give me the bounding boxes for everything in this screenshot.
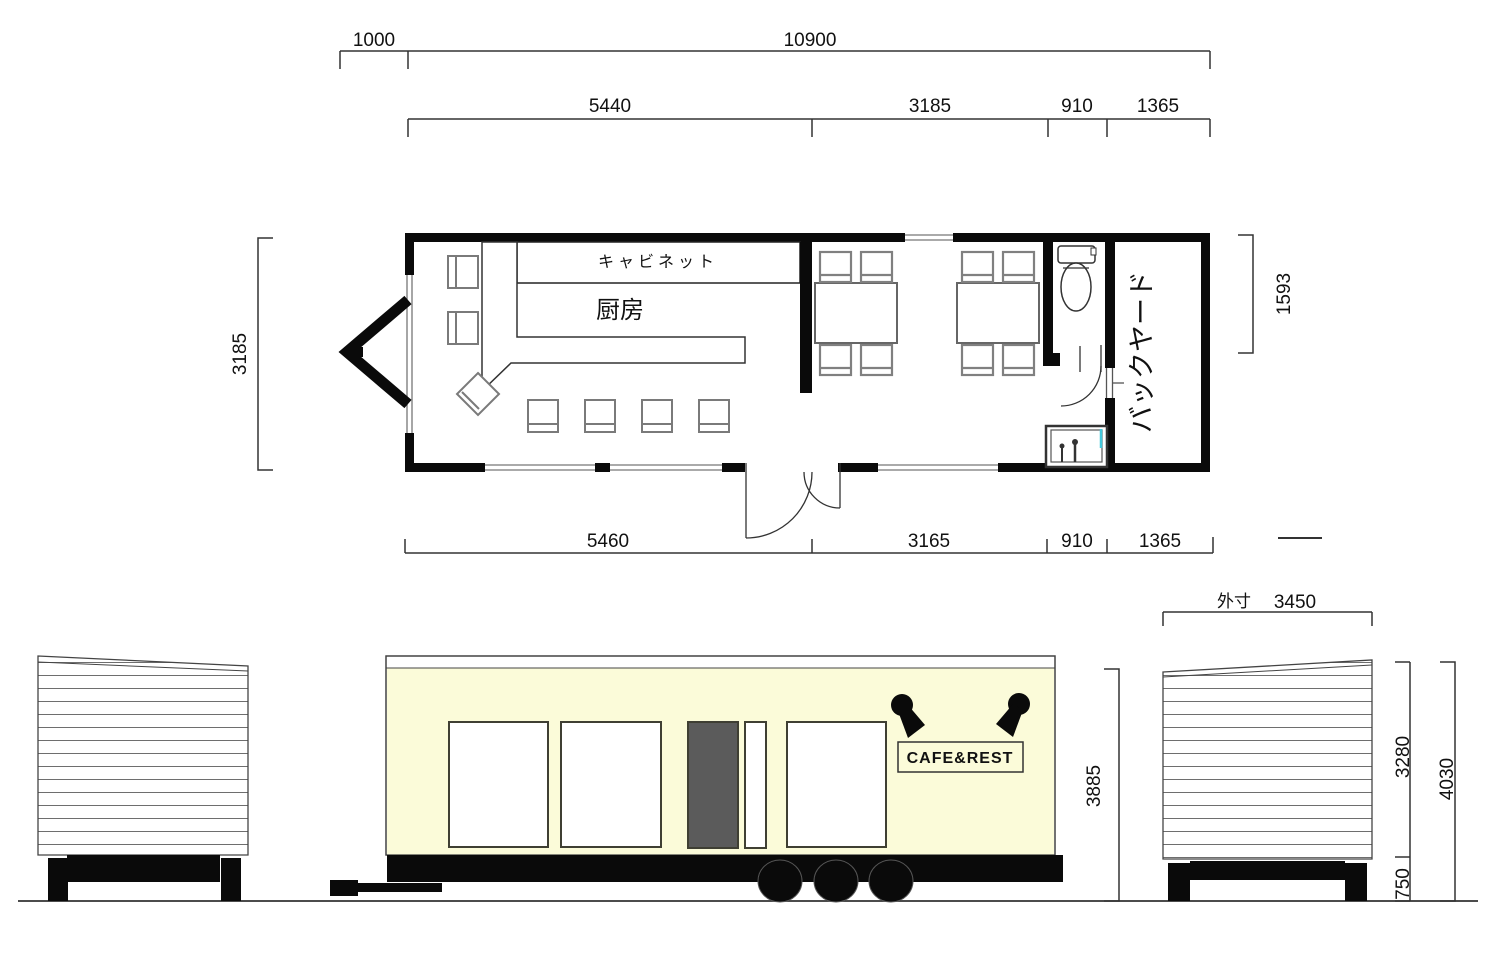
plan-dimensions-top bbox=[340, 51, 1210, 137]
kitchen-label: 厨房 bbox=[596, 297, 644, 324]
trailer-hitch bbox=[345, 300, 408, 404]
dim-top-dining: 3185 bbox=[909, 96, 951, 117]
front-door-sidelight bbox=[745, 722, 766, 848]
dim-hitch-length: 1000 bbox=[353, 30, 395, 51]
kitchen-partition-wall bbox=[800, 242, 812, 393]
floor-plan: キャビネット 厨房 bbox=[345, 233, 1210, 538]
front-door bbox=[688, 722, 738, 848]
rear-elevation bbox=[38, 656, 248, 901]
cabinet-label: キャビネット bbox=[598, 253, 718, 271]
dim-side-total-height: 4030 bbox=[1437, 758, 1458, 800]
drawing-canvas: 1000 10900 5440 3185 910 1365 bbox=[0, 0, 1500, 962]
dim-bottom-kitchen: 5460 bbox=[587, 531, 629, 552]
wheel-2 bbox=[814, 860, 858, 902]
plan-dimension-right: 1593 bbox=[1238, 235, 1295, 353]
dim-bottom-backyard: 1365 bbox=[1139, 531, 1181, 552]
cafe-sign-text: CAFE&REST bbox=[907, 750, 1014, 767]
wheel-3 bbox=[869, 860, 913, 902]
dim-top-toilet: 910 bbox=[1061, 96, 1093, 117]
wheel-1 bbox=[758, 860, 802, 902]
side-leg-right bbox=[1345, 863, 1367, 901]
hitch-bar bbox=[330, 883, 442, 892]
plan-dimension-left: 3185 bbox=[230, 238, 273, 470]
outer-dim-label: 外寸 bbox=[1217, 592, 1251, 611]
front-elevation: CAFE&REST bbox=[330, 656, 1063, 902]
wheels bbox=[758, 860, 913, 902]
front-height-dimension: 3885 bbox=[1084, 669, 1119, 901]
backyard-door bbox=[1107, 368, 1125, 398]
dim-front-height: 3885 bbox=[1084, 765, 1105, 807]
front-chassis bbox=[330, 855, 1063, 896]
rear-chassis bbox=[67, 855, 220, 882]
dim-side-outer-width: 3450 bbox=[1274, 592, 1316, 613]
dining-table-1 bbox=[815, 283, 897, 343]
dim-backyard-depth: 1593 bbox=[1274, 273, 1295, 315]
dim-top-kitchen: 5440 bbox=[589, 96, 631, 117]
plan-dimensions-bottom bbox=[405, 537, 1322, 553]
rear-leg-right bbox=[221, 858, 241, 901]
dim-bottom-toilet: 910 bbox=[1061, 531, 1093, 552]
dim-bottom-dining: 3165 bbox=[908, 531, 950, 552]
dim-plan-depth: 3185 bbox=[230, 333, 251, 375]
dim-total-width: 10900 bbox=[784, 30, 837, 51]
dim-top-backyard: 1365 bbox=[1137, 96, 1179, 117]
entrance-door bbox=[746, 463, 840, 538]
dim-side-body-height: 3280 bbox=[1393, 736, 1414, 778]
front-window-1 bbox=[449, 722, 548, 847]
dining-table-2 bbox=[957, 283, 1039, 343]
toilet-door bbox=[1061, 345, 1101, 406]
side-elevation bbox=[1163, 660, 1372, 901]
hand-sink bbox=[1046, 426, 1107, 467]
front-window-2 bbox=[561, 722, 661, 847]
toilet-fixture bbox=[1058, 246, 1096, 311]
side-chassis bbox=[1190, 861, 1345, 880]
dim-side-chassis-height: 750 bbox=[1393, 868, 1414, 900]
rear-leg-left bbox=[48, 858, 68, 901]
backyard-label: バックヤード bbox=[1127, 271, 1157, 433]
front-window-3 bbox=[787, 722, 886, 847]
trailer-cafe-drawing: 1000 10900 5440 3185 910 1365 bbox=[0, 0, 1500, 962]
side-leg-left bbox=[1168, 863, 1190, 901]
